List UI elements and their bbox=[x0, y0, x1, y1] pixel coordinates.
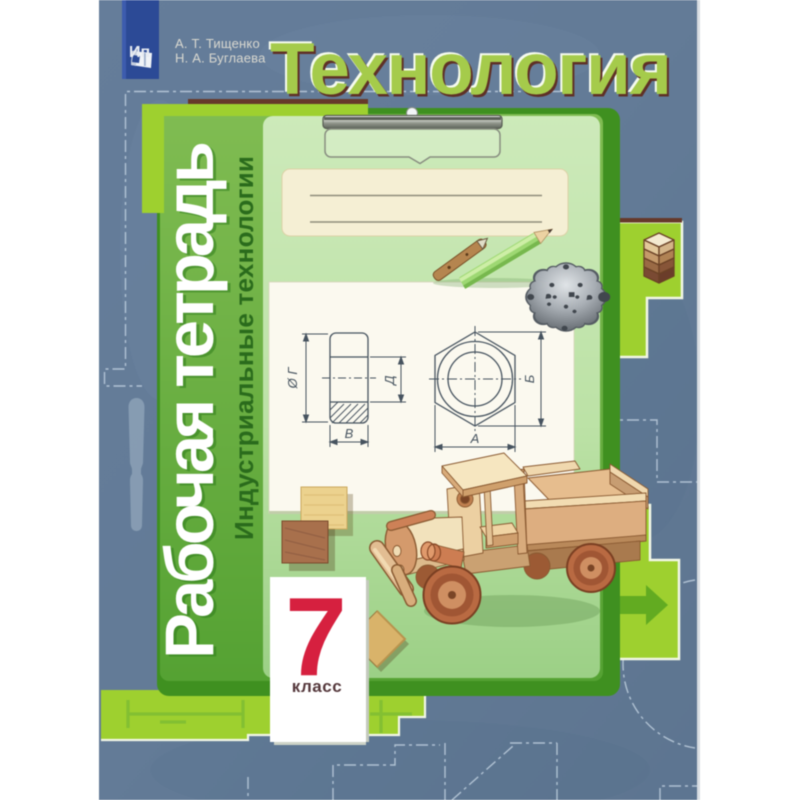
svg-text:Индустриальные технологии: Индустриальные технологии bbox=[229, 156, 259, 540]
svg-text:А: А bbox=[470, 431, 480, 446]
svg-text:Д: Д bbox=[382, 375, 397, 386]
svg-text:Ø Г: Ø Г bbox=[285, 367, 300, 390]
svg-text:Ип: Ип bbox=[129, 44, 150, 61]
svg-text:Технология: Технология bbox=[270, 29, 670, 110]
svg-text:В: В bbox=[345, 426, 354, 441]
svg-text:Н. А. Буглаева: Н. А. Буглаева bbox=[175, 51, 266, 66]
svg-text:Б: Б bbox=[522, 374, 537, 383]
svg-text:А. Т. Тищенко: А. Т. Тищенко bbox=[175, 36, 260, 51]
svg-text:класс: класс bbox=[292, 677, 342, 696]
svg-text:Рабочая тетрадь: Рабочая тетрадь bbox=[151, 141, 228, 659]
